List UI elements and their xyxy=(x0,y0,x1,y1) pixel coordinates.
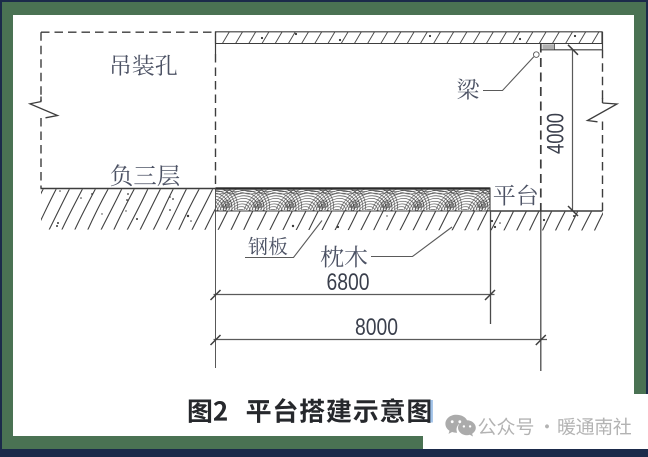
svg-text:4000: 4000 xyxy=(543,113,570,154)
svg-text:8000: 8000 xyxy=(355,314,398,341)
svg-text:6800: 6800 xyxy=(327,269,370,296)
